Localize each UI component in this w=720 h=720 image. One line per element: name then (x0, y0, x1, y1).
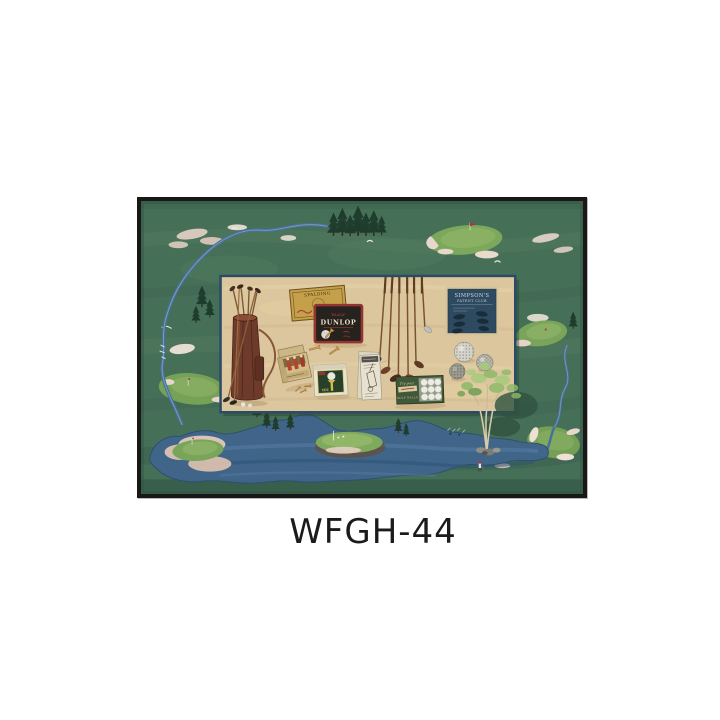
ball-box-script: Try your (400, 381, 415, 385)
dunlop-tin-title: DUNLOP (321, 319, 357, 327)
product-view: SPALDING 'BLACK' DUNLOP (0, 0, 720, 720)
simpsons-sign-subtitle: PATENT CLUB (457, 299, 487, 303)
ball-box-name: GOLF BALLS (397, 395, 419, 400)
golf-tee-box: TEE (313, 364, 350, 401)
product-code: WFGH-44 (0, 512, 720, 552)
simpsons-patent-club-sign: SIMPSON'S PATENT CLUB (445, 287, 498, 336)
dunlop-tin-subtitle: 'BLACK' (331, 313, 346, 317)
scorecard-papers (357, 352, 382, 401)
tee-box-label: TEE (322, 388, 330, 392)
framed-golf-artwork: SPALDING 'BLACK' DUNLOP (137, 197, 587, 498)
simpsons-sign-title: SIMPSON'S (455, 293, 490, 299)
dunlop-tin: 'BLACK' DUNLOP (314, 305, 367, 348)
golf-course-painting: SPALDING 'BLACK' DUNLOP (141, 201, 583, 494)
